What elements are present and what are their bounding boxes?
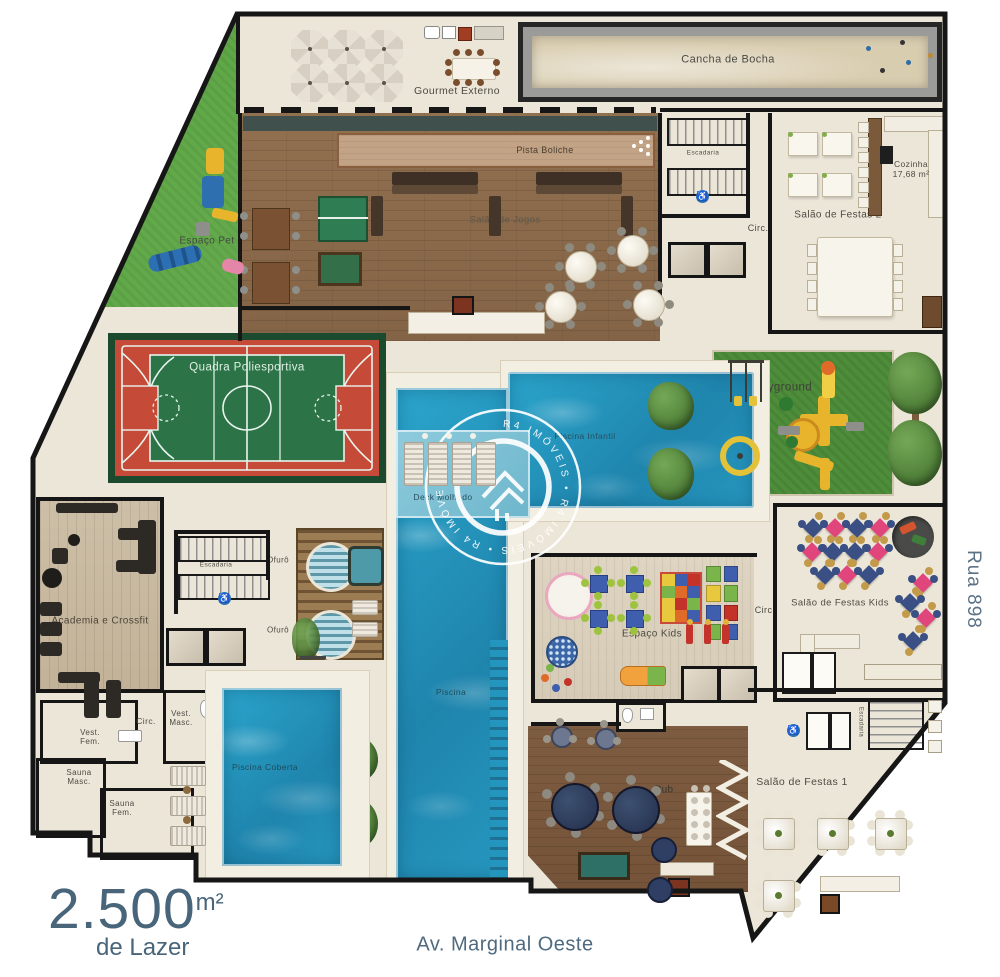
kitchen-counter [864,664,942,680]
chair [703,833,710,840]
chair [292,266,300,274]
chair [292,286,300,294]
cozinha-area: 17,68 m² [893,169,930,179]
gourmet-grill [458,27,472,41]
ofuro-label-1: Ofurô [267,555,289,564]
pergola-plant [292,618,320,660]
kids-party-chair [887,520,895,528]
swing-post [760,360,762,402]
kids-chair [643,614,651,622]
quadra-label: Quadra Poliesportiva [189,361,304,374]
gourmet-wc-fixtures [424,26,440,39]
kids-party-chair [820,520,828,528]
wall [746,113,750,217]
kids-party-chair [861,582,869,590]
chair [453,49,460,56]
chair [240,232,248,240]
stairs-top [667,118,748,146]
toy [552,684,560,692]
elevator [206,628,246,666]
kids-party-chair [832,567,840,575]
round-table [545,291,577,323]
kids-table [590,610,608,628]
kids-party-chair [895,595,903,603]
mat-cell [662,586,675,598]
bowling-pin [646,144,650,148]
gym-equipment [116,560,152,572]
kids-chair [643,579,651,587]
ofuro-label-2: Ofurô [267,625,289,634]
chair [445,59,452,66]
kids-chair [581,579,589,587]
kids-chair [630,566,638,574]
play-arm [846,422,864,431]
chair [893,262,903,275]
mat-cell [675,598,688,610]
kids-chair [607,614,615,622]
window-wall-top [244,107,656,113]
gym-dumbbell [68,534,80,546]
bowling-pin [632,144,636,148]
chair [703,797,710,804]
sauna-masc-label: Sauna Masc. [61,768,97,786]
kids-party-chair [827,535,835,543]
jogos-label: Salão de Jogos [469,216,540,227]
kids-party-chair [925,567,933,575]
street-right-label: Rua 898 [962,550,984,629]
festas1-wc [806,712,830,750]
kids-left-wall [531,553,535,703]
side-table [470,433,476,439]
sofa [489,196,501,236]
bar-stool [587,737,595,745]
umbrella-pole-icon [308,81,312,85]
piscina-coberta [222,688,342,866]
escadaria-mid-label: Escadaria [200,561,233,568]
jogos-fireplace [452,296,474,315]
pet-toy [202,176,224,208]
kids-chair [630,592,638,600]
kids-party-chair [882,512,890,520]
kids-party-chair [885,544,893,552]
umbrella-pole-icon [382,47,386,51]
brand-watermark: R4 IMÓVEIS • R4 IMÓVEIS • R4 IMÓVEIS • [418,402,588,572]
play-mat [660,572,702,624]
bowling-pin [639,140,643,144]
chair [597,262,606,271]
chair [292,212,300,220]
wall [768,330,945,334]
elevator [166,628,206,666]
escadaria-f1-label: Escadaria [857,707,864,737]
kids-party-chair [818,544,826,552]
swing-seat [749,396,757,406]
gourmet-table [452,58,496,80]
cozinha-name: Cozinha [894,159,928,169]
centerpiece [887,830,894,837]
hopscotch-cell [706,566,721,582]
gym-ball [42,568,62,588]
chair [703,809,710,816]
avenue-label: Av. Marginal Oeste [416,934,593,957]
elevator [668,242,707,278]
table [822,132,852,156]
mat-cell [675,574,688,586]
umbrella-pole-icon [382,81,386,85]
bar-stool [569,735,577,743]
chair [240,286,248,294]
wall [660,108,945,112]
centerpiece [775,892,782,899]
kids-party-chair [814,536,822,544]
swing-post [730,360,732,402]
toy-figure [686,624,693,644]
kids-party-chair [930,575,938,583]
chair [928,720,942,733]
bowling-pin [639,148,643,152]
kids-party-chair [839,582,847,590]
snooker-table [318,252,362,286]
festas2-cabinet [922,296,942,328]
bar-stool [543,735,551,743]
accessibility-icon: ♿ [787,724,800,737]
tree [888,420,942,486]
area-title: 2.500m² de Lazer [48,876,224,962]
kids-party-chair [837,512,845,520]
palm-icon [786,436,798,448]
boliche-label: Pista Boliche [516,145,573,155]
escadaria-top-label: Escadaria [687,149,720,156]
kids-party-chair [849,559,857,567]
stairs-mid [178,536,270,562]
stairs-festas1 [868,700,924,750]
shower-post [300,656,326,659]
festas1-buffet [820,876,900,892]
chair [691,821,698,828]
bowling-pin [646,152,650,156]
elevator [707,242,746,278]
toy-figure-head [723,619,729,625]
bush [648,448,694,500]
jogos-wall [240,306,410,310]
kids-chair [594,592,602,600]
swing-post [745,360,747,402]
kids-party-chair [798,520,806,528]
wall [236,14,240,114]
gym-equipment [40,642,62,656]
bocce-ball [900,40,905,45]
gym-equipment [56,503,118,513]
centerpiece [829,830,836,837]
kids-party-chair [857,536,865,544]
wall [661,214,750,218]
kids-table [626,610,644,628]
table [252,208,290,250]
flower [788,132,793,137]
kids-chair [607,579,615,587]
chair [807,298,817,311]
kids-party-chair [797,544,805,552]
chair [493,69,500,76]
festas-kids-top-wall [773,503,945,507]
sofa [371,196,383,236]
kids-party-chair [827,559,835,567]
circ-left-label: Circ. [136,717,155,727]
centerpiece [775,830,782,837]
palm-icon [779,397,793,411]
bush [648,382,694,430]
wall [768,113,772,334]
chair [807,280,817,293]
chair [928,740,942,753]
kids-chair [630,627,638,635]
play-structure-cap [821,361,835,375]
chair [577,302,586,311]
kids-party-chair [898,633,906,641]
elevator [681,666,720,703]
gourmet-sink [442,26,456,39]
gym-equipment [52,548,68,564]
side-table [183,786,191,794]
kids-chair [581,614,589,622]
hopscotch-cell [724,566,739,582]
gourmet-counter [474,26,504,40]
kids-party-chair [905,648,913,656]
lounger [476,442,496,486]
kids-table [626,575,644,593]
kids-party-chair [865,520,873,528]
chair [691,809,698,816]
elevator [718,666,757,703]
ping-pong-table [318,196,368,242]
lounger [170,766,206,786]
pub-pool-table [578,852,630,880]
mat-cell [662,610,675,622]
bocce-ball [880,68,885,73]
toy-figure-head [705,619,711,625]
tree [888,352,942,414]
kids-party-chair [815,512,823,520]
kids-party-chair [915,625,923,633]
hopscotch-cell [706,585,721,601]
area-value: 2.500 [48,877,196,941]
mat-cell [687,598,700,610]
table [822,173,852,197]
pergola-lounger [352,622,378,637]
side-table [446,433,452,439]
side-table [422,433,428,439]
sofa [536,185,622,194]
chair [445,69,452,76]
bocce-ball [906,60,911,65]
kids-party-chair [854,567,862,575]
wc-fixture [118,730,142,742]
chair [858,197,869,208]
lounger [170,826,206,846]
mat-cell [662,574,675,586]
bowling-pin [646,136,650,140]
floor-plan: Cancha de Bocha Gourmet Externo Pista Bo… [0,0,1000,977]
table [788,173,818,197]
chair [607,246,616,255]
flower [822,132,827,137]
piscina-label: Piscina [436,688,466,698]
umbrella-pole-icon [345,81,349,85]
toy-figure [722,624,729,644]
bocce-ball [928,53,933,58]
kids-party-chair [842,520,850,528]
lounger [404,442,424,486]
jogos-top-strip [243,116,657,131]
chair [807,244,817,257]
chair [893,244,903,257]
chair [858,122,869,133]
sofa [392,172,478,185]
chair [893,298,903,311]
kids-party-chair [810,567,818,575]
kids-party-chair [849,535,857,543]
festas1-label: Salão de Festas 1 [756,776,847,788]
chair [649,246,658,255]
kids-chair [630,601,638,609]
pet-toy [206,148,224,174]
gym-equipment [106,680,121,718]
quadra-court [108,333,386,483]
lounger [428,442,448,486]
flower [822,173,827,178]
pub-screen [716,760,750,864]
bocha-label: Cancha de Bocha [681,54,774,67]
toy-figure [704,624,711,644]
espaco-pet-label: Espaço Pet [179,235,234,247]
play-structure [820,458,830,490]
chair [477,49,484,56]
bowling-lane [337,133,655,168]
kids-party-chair [917,595,925,603]
chair [691,785,698,792]
area-subtitle: de Lazer [96,934,224,962]
pub-chair [626,775,636,785]
wall [174,530,178,614]
kids-party-chair [933,610,941,618]
chair [240,212,248,220]
chair [893,280,903,293]
festas-kids-label: Salão de Festas Kids [791,599,889,610]
festas1-wc [830,712,851,750]
round-table [617,235,649,267]
vest-fem-label: Vest. Fem. [75,728,105,746]
kids-chair [594,566,602,574]
pub-table [612,786,660,834]
vest-masc-label: Vest. Masc. [164,709,198,727]
chair [535,302,544,311]
play-structure [818,396,830,446]
chair [623,300,632,309]
carousel-hub [737,453,743,459]
gym-equipment [40,622,62,636]
pool-steps [490,640,508,880]
accessibility-icon: ♿ [218,592,231,605]
festas-kids-left-wall [773,503,777,702]
mat-cell [675,610,688,622]
kids-slide [620,666,666,686]
kids-party-chair [902,610,910,618]
festas2-long-table [817,237,893,317]
kids-party-chair [928,602,936,610]
chair [477,79,484,86]
gym-equipment [84,680,99,718]
toy [546,664,554,672]
chair [703,785,710,792]
table [788,132,818,156]
mat-cell [662,598,675,610]
side-table [183,816,191,824]
round-table [565,251,597,283]
pub-small-table [647,877,673,903]
chair [555,262,564,271]
wall [266,530,270,580]
area-unit: m² [196,889,224,916]
pergola-lounger [352,600,378,615]
mat-cell [687,574,700,586]
jogos-counter [408,312,545,334]
lounger [170,796,206,816]
kids-party-chair [859,512,867,520]
kids-chair [617,579,625,587]
chair [691,797,698,804]
wc-fixture [640,708,654,720]
chair [665,300,674,309]
academia-label: Academia e Crossfit [51,615,148,627]
kids-party-chair [817,582,825,590]
kids-party-chair [871,559,879,567]
kids-party-chair [840,544,848,552]
kids-party-chair [912,587,920,595]
chair [928,700,942,713]
kids-table [590,575,608,593]
accessibility-icon: ♿ [696,190,709,203]
pet-toy [196,222,210,236]
toy-figure-head [687,619,693,625]
sofa [392,185,478,194]
chair [858,182,869,193]
kids-party-chair [876,567,884,575]
kids-chair [617,614,625,622]
kids-party-chair [880,536,888,544]
umbrella-pole-icon [308,47,312,51]
toy [541,674,549,682]
pub-small-table [651,837,677,863]
gym-equipment [40,602,62,616]
chair [691,833,698,840]
wall [238,113,242,341]
chair [858,152,869,163]
wall [174,530,270,534]
sofa [536,172,622,185]
swing-seat [734,396,742,406]
chair [453,79,460,86]
pub-chair [565,772,575,782]
table [252,262,290,304]
kids-party-chair [863,544,871,552]
kids-party-chair [920,633,928,641]
kids-chair [594,627,602,635]
bar-stool [613,737,621,745]
pub-table [551,783,599,831]
lounger [452,442,472,486]
umbrella-pole-icon [345,47,349,51]
chair [858,167,869,178]
